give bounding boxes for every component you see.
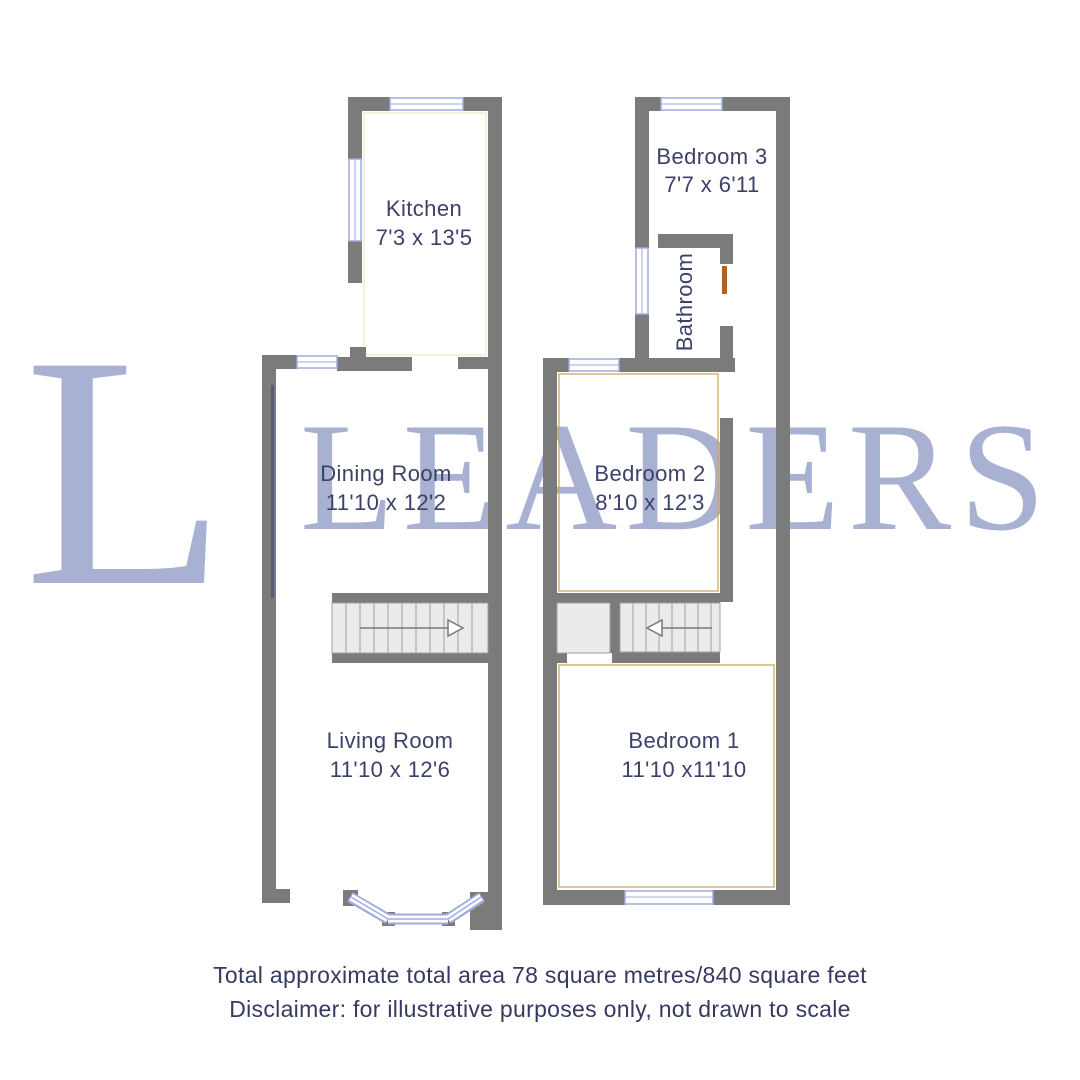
ground-floor-stairs [332, 603, 488, 653]
dining-window-icon [297, 356, 337, 368]
kitchen-label: Kitchen [386, 196, 462, 221]
first-floor-stairs [557, 603, 720, 653]
bedroom1-label: Bedroom 1 [628, 728, 739, 753]
disclaimer-text: Disclaimer: for illustrative purposes on… [0, 992, 1080, 1026]
living-room-label: Living Room [327, 728, 454, 753]
bedroom1-dimensions: 11'10 x11'10 [622, 757, 747, 782]
bedroom2-label: Bedroom 2 [594, 461, 705, 486]
bedroom3-label: Bedroom 3 [656, 144, 767, 169]
bedroom2-window-icon [569, 359, 619, 371]
kitchen-top-window-icon [390, 98, 463, 110]
bay-window-icon [350, 897, 482, 919]
bedroom3-dimensions: 7'7 x 6'11 [664, 172, 759, 197]
floorplan-drawing: Kitchen 7'3 x 13'5 Dining Room 11'10 x 1… [0, 0, 1080, 1080]
dining-room-label: Dining Room [320, 461, 452, 486]
total-area-text: Total approximate total area 78 square m… [0, 958, 1080, 992]
dining-room-dimensions: 11'10 x 12'2 [326, 490, 446, 515]
bedroom1-window-icon [625, 891, 713, 904]
bathroom-door [722, 266, 727, 294]
stairs-landing [557, 603, 610, 653]
bedroom3-window-icon [661, 98, 722, 110]
dining-wall-edge-line [271, 385, 274, 598]
kitchen-side-window-icon [349, 159, 361, 241]
kitchen-dimensions: 7'3 x 13'5 [376, 225, 473, 250]
footer: Total approximate total area 78 square m… [0, 958, 1080, 1026]
bathroom-window-icon [636, 248, 648, 314]
living-room-dimensions: 11'10 x 12'6 [330, 757, 450, 782]
first-floor-plan: Bedroom 3 7'7 x 6'11 Bathroom Bedroom 2 … [543, 97, 790, 905]
bathroom-label: Bathroom [672, 253, 697, 352]
bedroom2-dimensions: 8'10 x 12'3 [595, 490, 704, 515]
ground-floor-plan: Kitchen 7'3 x 13'5 Dining Room 11'10 x 1… [262, 97, 502, 930]
